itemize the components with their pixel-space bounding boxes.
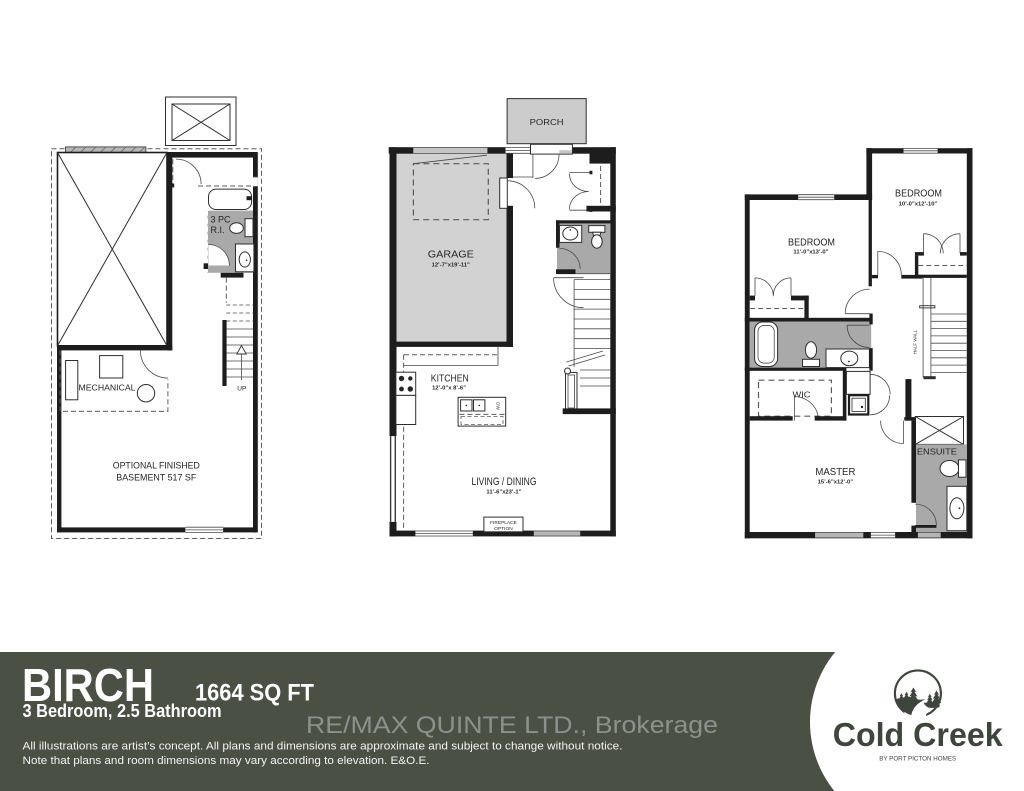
svg-text:UP: UP <box>237 386 246 393</box>
svg-text:MASTER: MASTER <box>815 467 855 478</box>
svg-text:12’-7”x19’-11”: 12’-7”x19’-11” <box>432 263 470 269</box>
svg-text:11’-6”x23’-1”: 11’-6”x23’-1” <box>486 490 521 496</box>
svg-text:BEDROOM: BEDROOM <box>895 189 942 200</box>
svg-text:RE/MAX QUINTE LTD., Brokerage: RE/MAX QUINTE LTD., Brokerage <box>306 712 718 739</box>
svg-text:Cold Creek: Cold Creek <box>833 716 1004 753</box>
svg-text:FIREPLACE: FIREPLACE <box>490 520 517 526</box>
svg-text:DW: DW <box>496 402 501 410</box>
svg-text:BASEMENT 517 SF: BASEMENT 517 SF <box>116 473 196 483</box>
svg-text:3 PC: 3 PC <box>211 215 232 225</box>
svg-text:Note that plans and room dimen: Note that plans and room dimensions may … <box>23 755 430 767</box>
svg-text:PORCH: PORCH <box>530 118 564 127</box>
svg-text:MECHANICAL: MECHANICAL <box>79 383 136 393</box>
svg-text:15’-6”x12’-0”: 15’-6”x12’-0” <box>818 480 854 486</box>
svg-text:BEDROOM: BEDROOM <box>788 238 835 249</box>
svg-text:WIC: WIC <box>793 390 811 400</box>
svg-text:OPTION: OPTION <box>494 526 513 532</box>
svg-text:ENSUITE: ENSUITE <box>917 447 957 457</box>
svg-text:10’-0”x12’-10”: 10’-0”x12’-10” <box>899 202 938 208</box>
svg-text:OPTIONAL FINISHED: OPTIONAL FINISHED <box>113 461 200 471</box>
svg-text:BY PORT PICTON HOMES: BY PORT PICTON HOMES <box>879 756 957 763</box>
svg-text:GARAGE: GARAGE <box>428 250 474 261</box>
svg-text:KITCHEN: KITCHEN <box>431 374 469 385</box>
svg-text:3 Bedroom, 2.5 Bathroom: 3 Bedroom, 2.5 Bathroom <box>23 701 222 721</box>
svg-text:All illustrations are artist’s: All illustrations are artist’s concept. … <box>23 741 623 753</box>
svg-text:LIVING / DINING: LIVING / DINING <box>472 476 537 488</box>
svg-text:R.I.: R.I. <box>211 225 225 235</box>
svg-text:11’-0”x13’-0”: 11’-0”x13’-0” <box>793 250 828 256</box>
svg-text:12’-0”x 8’-6”: 12’-0”x 8’-6” <box>432 386 466 392</box>
svg-text:HALF WALL: HALF WALL <box>913 329 918 354</box>
